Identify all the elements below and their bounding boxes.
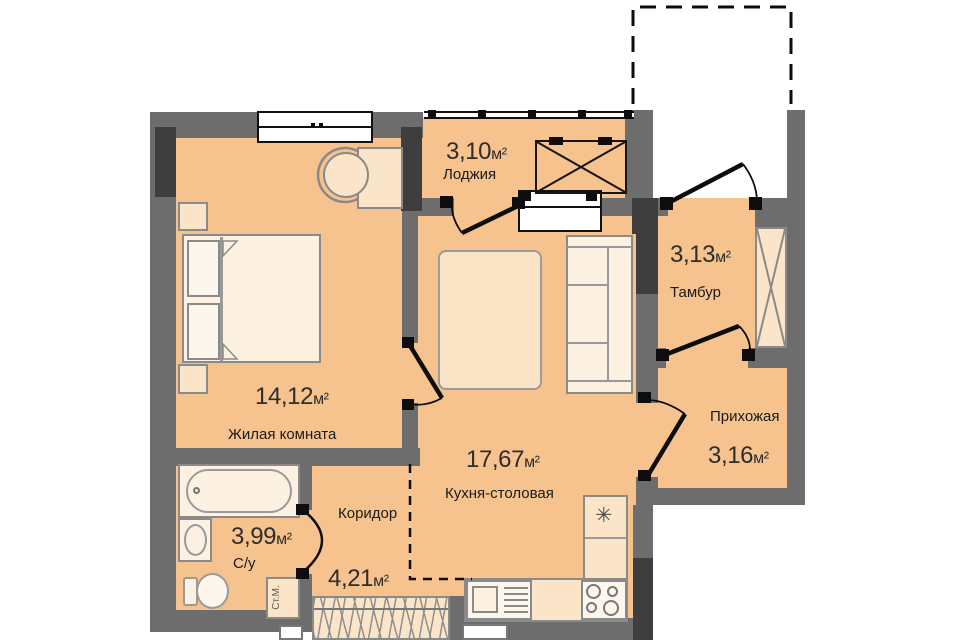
fridge-icon: ✳ — [595, 503, 613, 528]
kitchen-window-tab — [520, 192, 531, 201]
wall-bathroom-right-upper — [298, 464, 312, 510]
living-area-unit: м² — [313, 391, 329, 408]
bathroom-area-label: 3,99м² — [231, 523, 292, 551]
wall-right-outer — [787, 110, 805, 505]
pillow — [187, 240, 220, 297]
toilet-bowl — [196, 573, 229, 609]
floor-plan-canvas: ✳ Ст.М. 3,10м² Лоджия 14,12м² Жилая комн… — [0, 0, 960, 640]
hallway-door-opening — [636, 401, 658, 479]
bathroom-area-value: 3,99 — [231, 523, 276, 550]
hallway-floor — [658, 368, 787, 488]
radiator — [462, 624, 508, 640]
living-area-label: 14,12м² — [255, 383, 329, 411]
living-name-label: Жилая комната — [228, 426, 336, 443]
pier-kitchen-right — [636, 216, 658, 294]
wall-loggia-kitchen-right — [600, 198, 628, 216]
living-area-value: 14,12 — [255, 383, 313, 410]
wall-living-kitchen-lower — [402, 403, 418, 460]
loggia-unit-tab — [598, 137, 612, 145]
tambour-area-unit: м² — [715, 249, 731, 266]
kitchen-window-tab — [586, 192, 597, 201]
tambour-area-label: 3,13м² — [670, 241, 731, 269]
blanket-edge — [220, 237, 223, 361]
loggia-area-value: 3,10 — [446, 138, 491, 165]
sofa-line — [568, 342, 608, 344]
bathroom-door-opening — [298, 508, 312, 576]
living-window-mullion — [259, 126, 371, 128]
living-door-opening — [400, 340, 422, 408]
wall-loggia-kitchen-left — [418, 198, 454, 216]
cabinet-divider — [585, 537, 626, 539]
kitchen-name-label: Кухня-столовая — [445, 485, 554, 502]
bathroom-name-label: С/у — [233, 555, 256, 572]
closet-shaft — [755, 227, 787, 348]
sofa-line — [567, 380, 632, 382]
burner — [586, 584, 601, 599]
burner — [586, 602, 597, 613]
loggia-area-unit: м² — [491, 146, 507, 163]
entrance-door-swing — [743, 164, 757, 200]
toilet-tank — [183, 577, 198, 606]
bathroom-sink-bowl — [184, 524, 207, 556]
nightstand — [178, 364, 208, 394]
hallway-area-label: 3,16м² — [708, 442, 769, 470]
wall-hallway-bottom — [640, 488, 805, 505]
loggia-unit-tab — [549, 137, 563, 145]
rail-post — [624, 110, 632, 119]
balcony-door-opening — [450, 196, 520, 216]
kitchen-sink — [472, 586, 498, 613]
rail-post — [478, 110, 486, 119]
sofa-line — [568, 284, 608, 286]
dashed-structure-outline — [633, 7, 791, 104]
chair — [323, 152, 369, 198]
sink-drainer — [504, 587, 528, 613]
kitchen-window-mullion — [520, 206, 600, 208]
wall-tambour-hallway-left — [640, 348, 666, 368]
wardrobe — [312, 596, 450, 640]
hallway-name-label: Прихожая — [710, 408, 780, 425]
living-window — [257, 111, 373, 143]
sofa — [566, 235, 633, 394]
washing-machine-label: Ст.М. — [271, 585, 282, 610]
tambour-name-label: Тамбур — [670, 284, 721, 301]
corridor-area-label: 4,21м² — [328, 565, 389, 593]
sofa-backrest-line — [607, 247, 609, 381]
kitchen-area-unit: м² — [524, 454, 540, 471]
rug — [438, 250, 542, 390]
tambour-area-value: 3,13 — [670, 241, 715, 268]
pillow — [187, 303, 220, 360]
loggia-area-label: 3,10м² — [446, 138, 507, 166]
entrance-door-opening — [666, 198, 758, 216]
radiator — [279, 625, 303, 640]
bathtub-drain — [193, 487, 200, 494]
rail-post — [428, 110, 436, 119]
bathroom-area-unit: м² — [276, 531, 292, 548]
wall-living-kitchen-upper — [402, 211, 418, 343]
nightstand — [178, 202, 208, 231]
pier-left — [155, 127, 176, 197]
living-window-handle — [311, 123, 315, 127]
pier-kitchen-bottom-right — [633, 558, 653, 640]
wardrobe-rod — [314, 608, 448, 610]
kitchen-area-label: 17,67м² — [466, 446, 540, 474]
burner — [607, 586, 618, 597]
corridor-name-label: Коридор — [338, 505, 397, 522]
sofa-line — [567, 246, 632, 248]
corridor-area-value: 4,21 — [328, 565, 373, 592]
rail-post — [528, 110, 536, 119]
loggia-unit-box — [535, 140, 627, 194]
rail-post — [578, 110, 586, 119]
hallway-area-unit: м² — [753, 450, 769, 467]
wall-closet-top — [755, 214, 787, 227]
hallway-area-value: 3,16 — [708, 442, 753, 469]
tambour-floor — [658, 216, 755, 348]
pier-living-loggia — [401, 127, 422, 211]
tambour-door-opening — [664, 348, 750, 368]
living-window-handle — [319, 123, 323, 127]
bathtub-basin — [186, 469, 292, 513]
loggia-name-label: Лоджия — [443, 166, 496, 183]
wall-tambour-hallway-right — [748, 348, 787, 368]
kitchen-area-value: 17,67 — [466, 446, 524, 473]
corridor-area-unit: м² — [373, 573, 389, 590]
burner — [603, 600, 619, 616]
